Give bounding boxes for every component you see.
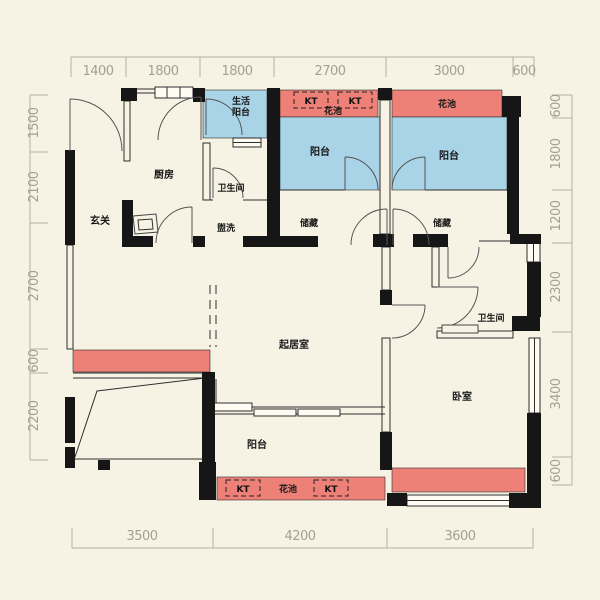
dim-right-600b: 600 [549,459,564,483]
bathroom-sink-counter [442,325,478,333]
bathroom-right-wall [432,247,439,287]
wall-segment [413,234,448,247]
top-wall-line [137,89,155,93]
dim-bottom-4200: 4200 [284,529,315,544]
wall-segment [387,493,407,506]
sliding-door-panel-1 [214,403,252,411]
room-label-flower-bottom: 花池 [279,483,297,495]
room-label-flower-top-center: 花池 [324,105,342,117]
room-label-service-balcony-2: 阳台 [232,106,250,118]
floor-plan: 1400 1800 1800 2700 3000 600 3500 4200 3… [0,0,600,600]
room-label-bedroom: 卧室 [452,390,472,403]
wall-segment [202,372,215,462]
wall-segment [199,462,216,500]
wall-segment [65,447,75,468]
dim-top-2700: 2700 [314,64,345,79]
kitchen-window [155,87,193,98]
dim-left-2700: 2700 [27,270,42,301]
dim-top-600: 600 [512,64,536,79]
left-wall-lower [67,245,73,349]
room-label-entry: 玄关 [90,214,110,227]
room-label-balcony-top-right: 阳台 [439,149,459,162]
room-label-kitchen: 厨房 [154,168,174,181]
center-divider-wall [380,100,390,234]
wall-segment [507,116,519,234]
bathroom-right-door [437,287,478,328]
bathroom-top-wall [203,143,210,200]
living-corridor-door [392,305,425,338]
dim-bottom-3600: 3600 [444,529,475,544]
flower-bed-bedroom-area [392,468,525,492]
dim-top-1800b: 1800 [221,64,252,79]
living-corridor-wall-b [382,338,390,432]
dimension-chain-top: 1400 1800 1800 2700 3000 600 [71,57,536,79]
dim-right-1200: 1200 [549,200,564,231]
wall-segment [527,262,541,317]
dim-right-3400: 3400 [549,378,564,409]
dim-left-600: 600 [27,349,42,373]
wall-segment [98,460,110,470]
dim-top-3000: 3000 [433,64,464,79]
room-label-balcony-top-center: 阳台 [310,145,330,158]
ac-label: KT [324,485,338,495]
wall-segment [65,150,75,245]
room-label-storage-center: 储藏 [300,217,318,229]
room-label-storage-right: 储藏 [433,217,451,229]
room-label-service-balcony-1: 生活 [232,95,250,107]
wall-segment [121,88,137,101]
sliding-door-panel-2 [254,409,296,416]
flower-bed-left-area [73,350,210,372]
living-corridor-wall-a [382,247,390,290]
dimension-chain-bottom: 3500 4200 3600 [72,528,533,548]
room-label-living-room: 起居室 [278,338,309,351]
entry-living-door [156,207,192,243]
dim-top-1800a: 1800 [147,64,178,79]
room-label-flower-top-right: 花池 [438,98,456,110]
kitchen-balcony-door [158,97,201,140]
wall-segment [512,316,540,331]
slope-outline [75,378,205,457]
wall-segment [65,397,75,443]
dim-right-1800: 1800 [549,138,564,169]
dim-left-2100: 2100 [27,171,42,202]
ac-label: KT [304,97,318,107]
wall-segment [193,88,205,102]
ac-label: KT [348,97,362,107]
room-label-bathroom-right: 卫生间 [477,312,504,324]
wall-segment [510,234,541,244]
room-label-washing: 盥洗 [217,222,235,234]
dim-left-2200: 2200 [27,400,42,431]
wall-segment [373,234,394,247]
wall-segment [380,290,392,305]
corridor-door [448,247,479,278]
wall-segment [193,236,205,247]
shoe-cabinet [133,214,158,234]
wall-segment [527,413,541,493]
dim-left-1500: 1500 [27,107,42,138]
balcony-top-center-area [280,117,380,190]
dim-top-1400: 1400 [82,64,113,79]
wall-segment [378,88,392,100]
ac-label: KT [236,485,250,495]
room-label-bathroom-top: 卫生间 [217,182,244,194]
wall-segment [122,236,153,247]
dimension-chain-left: 1500 2100 2700 600 2200 [27,95,48,460]
wall-segment [380,432,392,470]
sliding-door-panel-3 [298,409,340,416]
dim-right-600a: 600 [549,94,564,118]
living-room-dashed-boundary [210,285,216,347]
wall-segment [267,88,280,246]
left-flower-bed-edge [73,373,210,378]
kitchen-left-wall [124,101,130,161]
wall-segment [502,96,521,117]
dim-right-2300: 2300 [549,271,564,302]
entry-door [70,99,122,151]
wall-segment [243,236,318,247]
wall-segment [509,493,541,508]
dimension-chain-right: 600 1800 1200 2300 3400 600 [549,94,572,485]
room-label-balcony-bottom: 阳台 [247,438,267,451]
dim-bottom-3500: 3500 [126,529,157,544]
